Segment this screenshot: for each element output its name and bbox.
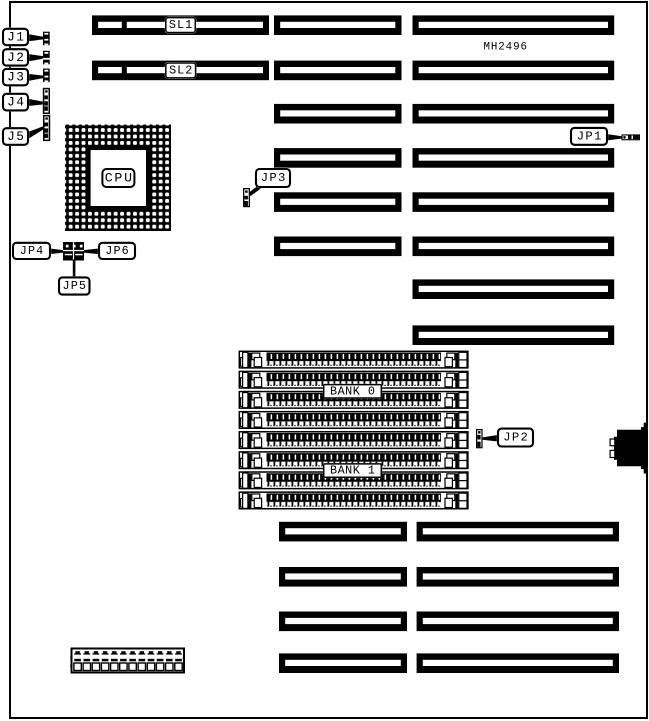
svg-text:J3: J3 <box>7 70 25 85</box>
svg-text:JP3: JP3 <box>261 171 287 185</box>
svg-text:JP6: JP6 <box>105 244 130 258</box>
svg-text:CPU: CPU <box>105 171 134 186</box>
svg-text:J1: J1 <box>7 30 25 45</box>
svg-text:JP1: JP1 <box>577 129 603 143</box>
svg-text:MH2496: MH2496 <box>484 42 528 54</box>
svg-text:J4: J4 <box>7 95 25 110</box>
svg-text:SL1: SL1 <box>169 18 193 32</box>
svg-text:JP4: JP4 <box>20 244 45 258</box>
svg-text:J2: J2 <box>7 50 25 65</box>
svg-text:BANK 0: BANK 0 <box>330 384 375 398</box>
svg-text:JP5: JP5 <box>63 279 88 293</box>
svg-text:JP2: JP2 <box>503 431 529 445</box>
svg-text:BANK 1: BANK 1 <box>330 464 375 478</box>
svg-text:SL2: SL2 <box>169 63 193 77</box>
svg-text:J5: J5 <box>7 129 25 144</box>
